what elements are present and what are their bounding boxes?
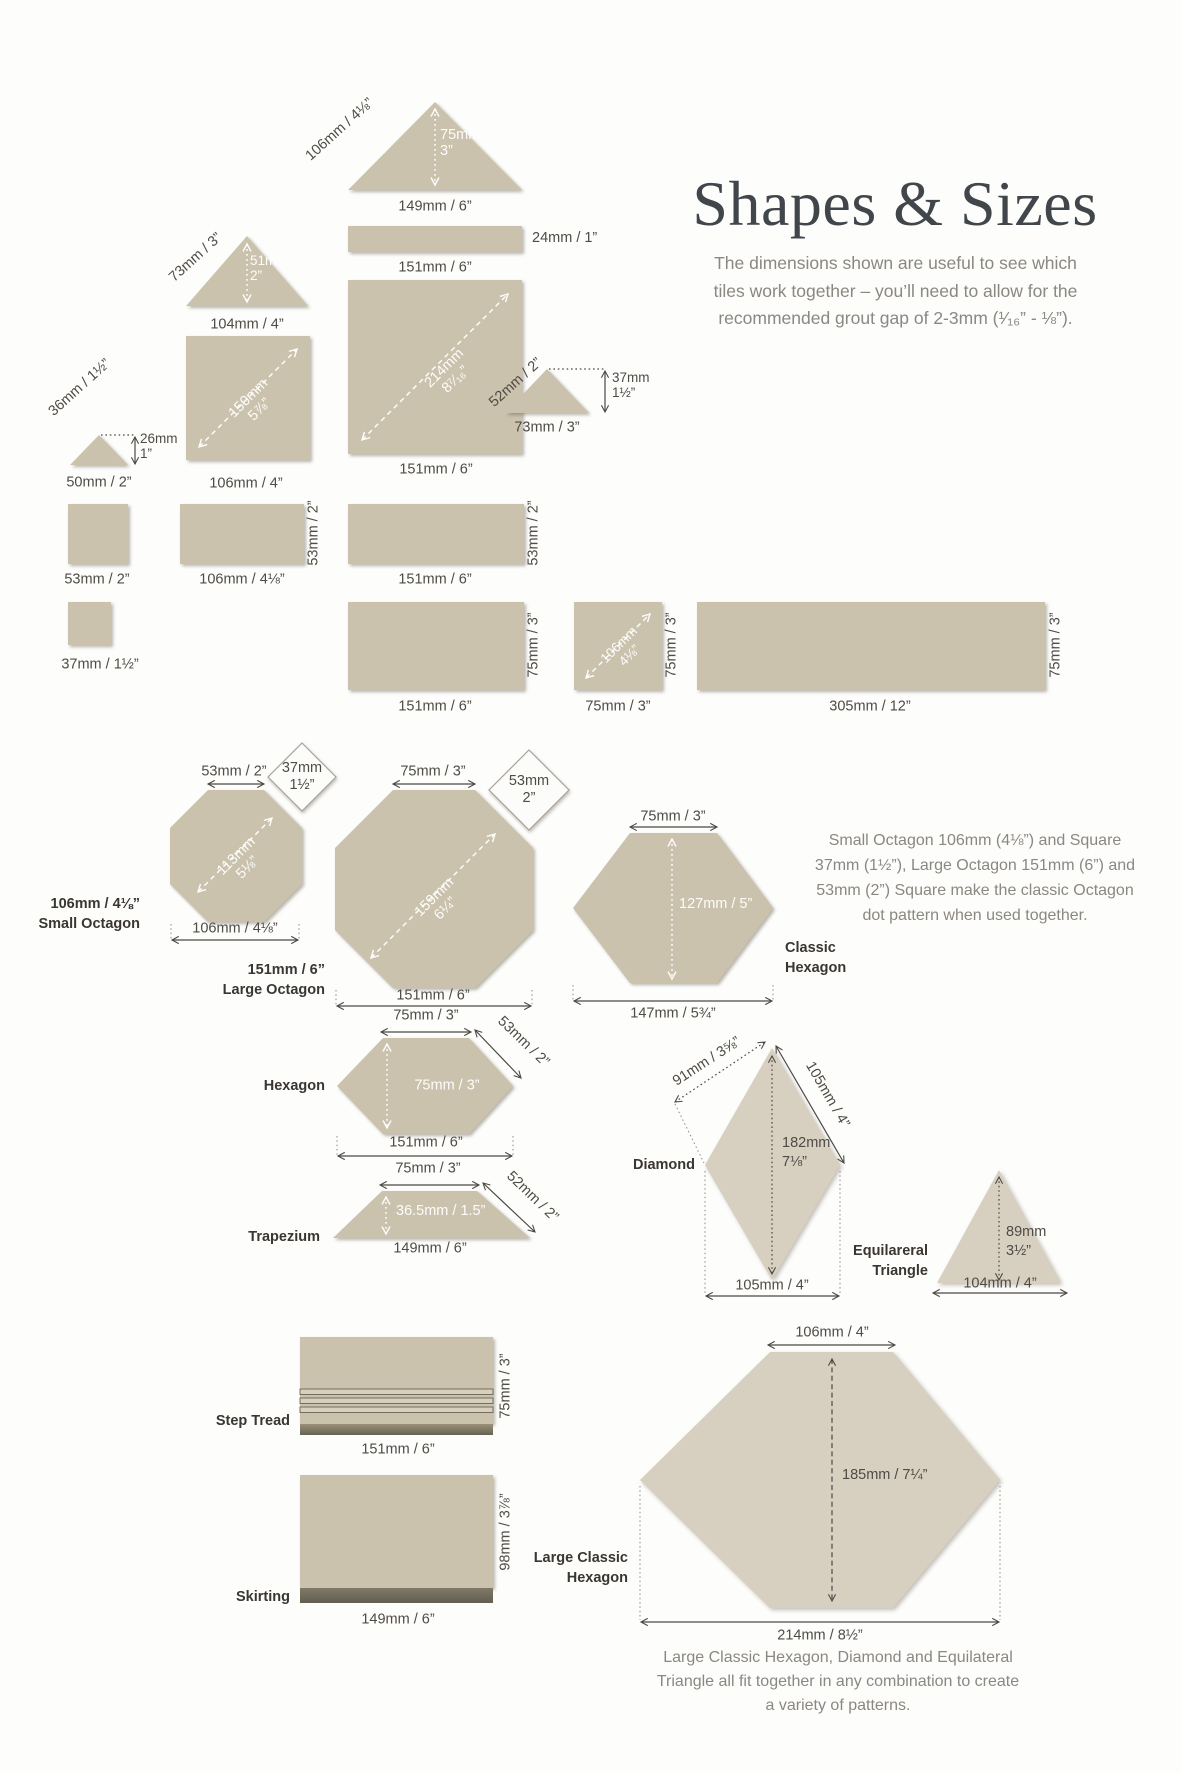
tile-rect-151x53 — [346, 502, 526, 566]
note-line: Triangle all fit together in any combina… — [618, 1670, 1058, 1694]
dim-base: 104mm / 4” — [210, 317, 283, 334]
dim-side: 53mm / 2” — [306, 500, 323, 565]
tile-triangle-149 — [346, 98, 524, 193]
dim-base: 50mm / 2” — [66, 475, 131, 492]
dim-base: 151mm / 6” — [398, 699, 471, 716]
dim-side: 75mm / 3” — [498, 1353, 515, 1418]
dim-top: 106mm / 4” — [795, 1325, 868, 1342]
intro-line: recommended grout gap of 2-3mm (¹⁄₁₆” - … — [613, 305, 1178, 333]
footer-note: Large Classic Hexagon, Diamond and Equil… — [618, 1646, 1058, 1718]
dim-top: 75mm / 3” — [395, 1161, 460, 1178]
dim-line: 37mm — [282, 760, 322, 777]
dim-base: 151mm / 6” — [398, 572, 471, 589]
shape-label-hexagon: Hexagon — [207, 1078, 325, 1095]
intro-line: The dimensions shown are useful to see w… — [613, 250, 1178, 278]
dim-line: 1” — [140, 446, 178, 461]
dim-base: 37mm / 1½” — [61, 657, 138, 674]
shape-label-trapezium: Trapezium — [200, 1229, 320, 1246]
dim-line: 75mm — [440, 127, 480, 143]
intro-line: tiles work together – you’ll need to all… — [613, 278, 1178, 306]
dim-line: 3” — [440, 143, 480, 159]
dim-side: 24mm / 1” — [532, 230, 597, 247]
dim-height: 75mm 3” — [440, 127, 480, 159]
dim-line: 53mm — [509, 773, 549, 790]
tile-triangle-50 — [68, 431, 146, 471]
shape-label-equilateral-triangle: Equilareral Triangle — [808, 1241, 928, 1281]
dim-base: 106mm / 4” — [209, 476, 282, 493]
dim-base: 151mm / 6” — [361, 1442, 434, 1459]
dim-top: 75mm / 3” — [393, 1008, 458, 1025]
dim-side: 75mm / 3” — [1048, 612, 1065, 677]
dim-base: 104mm / 4” — [963, 1276, 1036, 1293]
shape-label-line: Classic — [785, 938, 846, 958]
dim-line: 1½” — [282, 777, 322, 794]
note-line: a variety of patterns. — [618, 1694, 1058, 1718]
note-line: 53mm (2”) Square make the classic Octago… — [790, 878, 1160, 903]
tile-square-53 — [66, 502, 130, 566]
dim-line: 182mm — [782, 1134, 830, 1153]
dim-square-inset: 37mm 1½” — [282, 760, 322, 794]
dim-line: 2” — [509, 790, 549, 807]
note-line: Large Classic Hexagon, Diamond and Equil… — [618, 1646, 1058, 1670]
dim-height: 185mm / 7¼” — [842, 1467, 927, 1484]
shape-label-line: Large Octagon — [185, 980, 325, 1000]
dim-height: 75mm / 3” — [414, 1078, 479, 1095]
dim-base: 149mm / 6” — [393, 1241, 466, 1258]
dim-base: 151mm / 6” — [398, 260, 471, 277]
note-line: Small Octagon 106mm (4⅛”) and Square — [790, 828, 1160, 853]
dim-side: 53mm / 2” — [526, 500, 543, 565]
dim-line: 2” — [250, 268, 288, 283]
dim-base: 214mm / 8½” — [777, 1628, 862, 1645]
shape-label-classic-hexagon: Classic Hexagon — [785, 938, 846, 978]
shape-label-line: Triangle — [808, 1261, 928, 1281]
tile-rect-305x75 — [695, 600, 1047, 692]
dim-base: 149mm / 6” — [361, 1612, 434, 1629]
tile-rect-106x53 — [178, 502, 306, 566]
tile-strip-24 — [346, 224, 524, 254]
page-title: Shapes & Sizes — [692, 167, 1097, 241]
dim-base: 151mm / 6” — [396, 988, 469, 1005]
dim-square-inset: 53mm 2” — [509, 773, 549, 807]
dim-base: 105mm / 4” — [735, 1278, 808, 1295]
shape-label-line: Hexagon — [785, 958, 846, 978]
shapes-and-sizes-page: Shapes & Sizes The dimensions shown are … — [0, 0, 1181, 1772]
shape-label-line: Small Octagon — [16, 914, 140, 934]
note-line: dot pattern when used together. — [790, 903, 1160, 928]
dim-base: 73mm / 3” — [514, 420, 579, 437]
dim-line: 51mm — [250, 253, 288, 268]
intro-text: The dimensions shown are useful to see w… — [613, 250, 1178, 333]
tile-step-tread — [298, 1335, 496, 1439]
dim-height: 26mm 1” — [140, 431, 178, 461]
tile-rect-151x75 — [346, 600, 526, 692]
shape-label-line: Equilareral — [808, 1241, 928, 1261]
dim-top: 53mm / 2” — [201, 764, 266, 781]
dim-base: 149mm / 6” — [398, 199, 471, 216]
shape-label-line: Hexagon — [492, 1568, 628, 1588]
dim-height: 37mm 1½” — [612, 370, 650, 400]
dim-side: 75mm / 3” — [526, 612, 543, 677]
dim-height: 51mm 2” — [250, 253, 288, 283]
dim-height: 36.5mm / 1.5” — [396, 1203, 485, 1220]
shape-label-diamond: Diamond — [577, 1157, 695, 1174]
dim-base: 53mm / 2” — [64, 572, 129, 589]
tile-square-37 — [66, 600, 113, 647]
dim-line: 37mm — [612, 370, 650, 385]
shape-label-line: 151mm / 6” — [185, 960, 325, 980]
dim-top: 75mm / 3” — [640, 809, 705, 826]
dim-height: 127mm / 5” — [679, 896, 752, 913]
shape-label-line: Large Classic — [492, 1548, 628, 1568]
dim-base: 147mm / 5¾” — [630, 1006, 715, 1023]
shape-label-large-classic-hexagon: Large Classic Hexagon — [492, 1548, 628, 1588]
tile-large-classic-hexagon — [638, 1325, 1002, 1635]
shape-label-step-tread: Step Tread — [170, 1413, 290, 1430]
shape-label-small-octagon: 106mm / 4⅛” Small Octagon — [16, 894, 140, 934]
dim-base: 106mm / 4⅛” — [199, 572, 284, 589]
dim-base: 305mm / 12” — [829, 699, 910, 716]
dim-line: 1½” — [612, 385, 650, 400]
dim-side: 75mm / 3” — [664, 612, 681, 677]
dim-slope: 36mm / 1½” — [46, 356, 115, 420]
dim-height: 89mm 3½” — [1006, 1223, 1046, 1261]
dim-base: 106mm / 4⅛” — [192, 921, 277, 938]
dim-line: 3½” — [1006, 1242, 1046, 1261]
dim-line: 26mm — [140, 431, 178, 446]
dim-line: 7⅛” — [782, 1153, 830, 1172]
tile-skirting — [298, 1473, 496, 1607]
dim-base: 75mm / 3” — [585, 699, 650, 716]
shape-label-line: 106mm / 4⅛” — [16, 894, 140, 914]
octagon-note: Small Octagon 106mm (4⅛”) and Square 37m… — [790, 828, 1160, 928]
dim-base: 151mm / 6” — [389, 1135, 462, 1152]
dim-base: 151mm / 6” — [399, 462, 472, 479]
dim-height: 182mm 7⅛” — [782, 1134, 830, 1172]
dim-line: 89mm — [1006, 1223, 1046, 1242]
dim-top: 75mm / 3” — [400, 764, 465, 781]
shape-label-skirting: Skirting — [170, 1589, 290, 1606]
shape-label-large-octagon: 151mm / 6” Large Octagon — [185, 960, 325, 1000]
note-line: 37mm (1½”), Large Octagon 151mm (6”) and — [790, 853, 1160, 878]
